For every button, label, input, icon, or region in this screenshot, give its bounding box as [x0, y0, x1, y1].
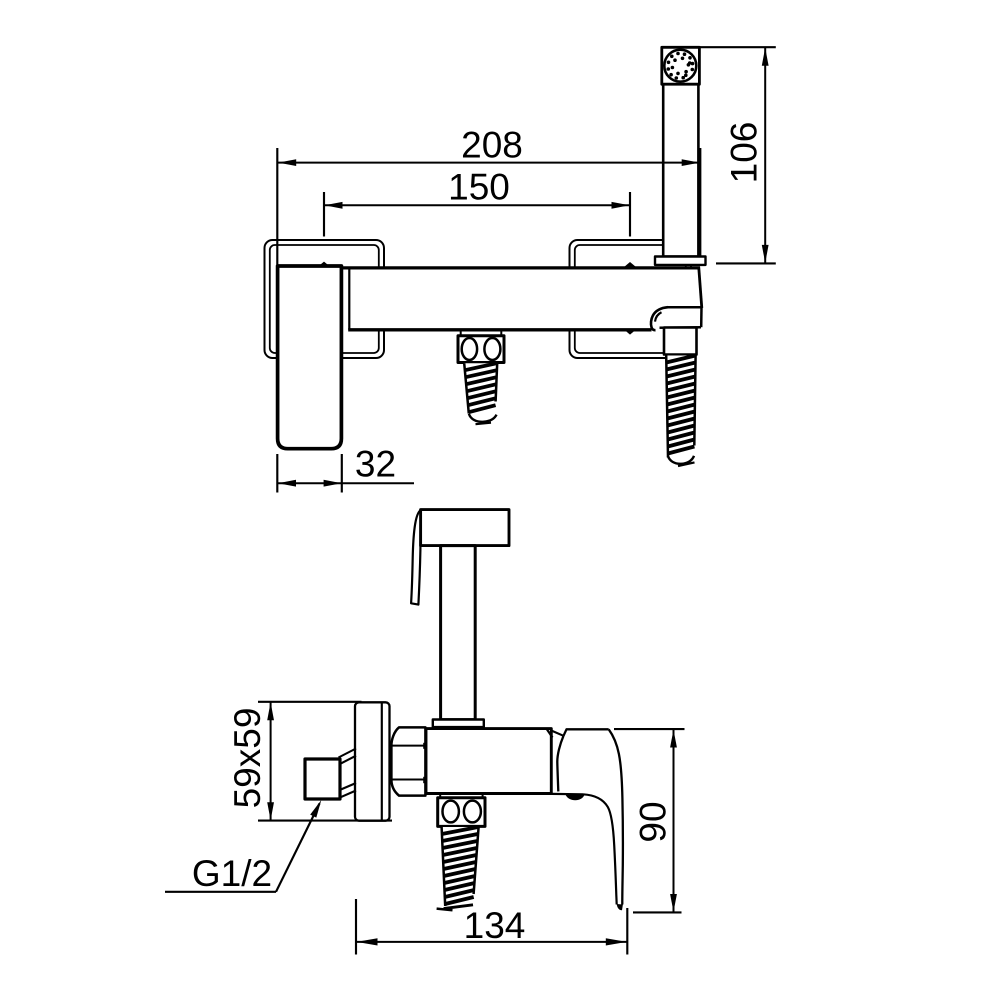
svg-text:150: 150 — [448, 167, 510, 208]
svg-text:59x59: 59x59 — [227, 708, 268, 809]
svg-text:G1/2: G1/2 — [192, 853, 272, 894]
svg-text:90: 90 — [632, 801, 673, 842]
svg-text:134: 134 — [464, 905, 526, 946]
svg-text:32: 32 — [355, 444, 396, 485]
svg-text:106: 106 — [724, 122, 765, 184]
svg-text:208: 208 — [461, 125, 523, 166]
